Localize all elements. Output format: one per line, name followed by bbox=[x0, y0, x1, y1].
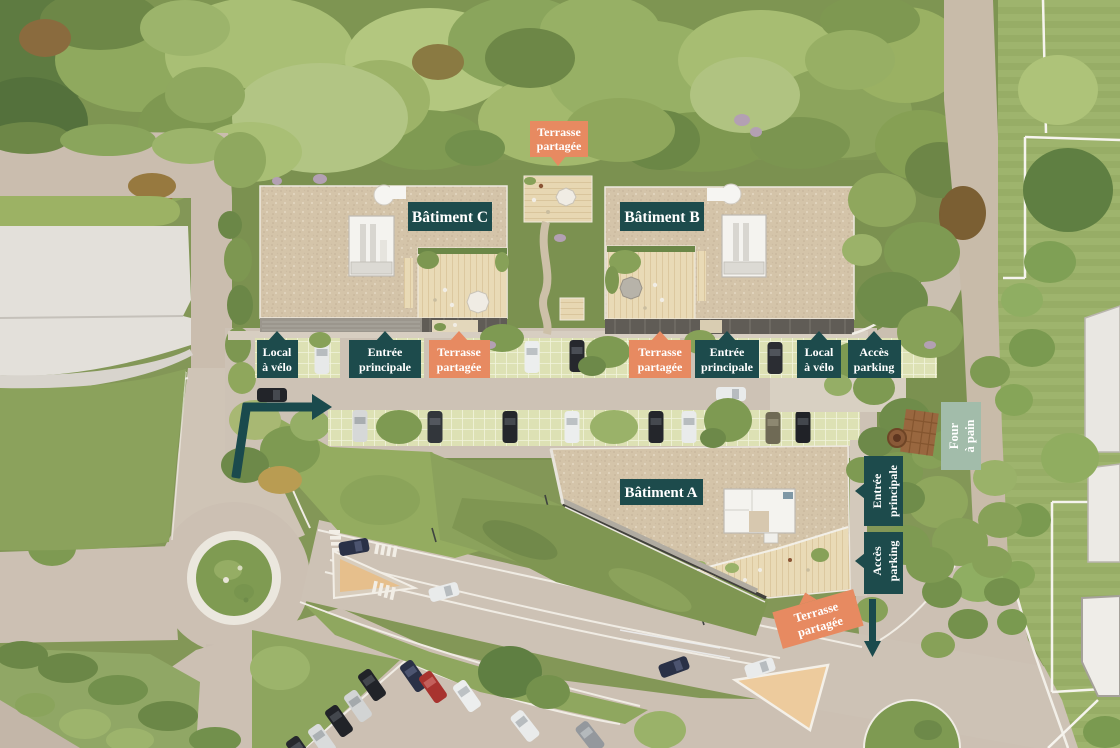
svg-text:Local: Local bbox=[805, 345, 834, 359]
svg-text:partagée: partagée bbox=[638, 360, 683, 374]
svg-text:Terrasse: Terrasse bbox=[437, 345, 481, 359]
svg-text:à vélo: à vélo bbox=[804, 360, 834, 374]
svg-text:Bâtiment C: Bâtiment C bbox=[412, 209, 488, 226]
svg-text:Bâtiment B: Bâtiment B bbox=[624, 209, 699, 226]
svg-text:Accès: Accès bbox=[870, 546, 884, 576]
svg-text:Bâtiment A: Bâtiment A bbox=[625, 485, 698, 501]
svg-text:Terrasse: Terrasse bbox=[537, 125, 581, 139]
svg-text:Entrée: Entrée bbox=[870, 473, 884, 508]
svg-text:à pain: à pain bbox=[963, 419, 977, 452]
svg-text:parking: parking bbox=[886, 541, 900, 582]
svg-text:partagée: partagée bbox=[537, 139, 582, 153]
svg-text:partagée: partagée bbox=[437, 360, 482, 374]
svg-text:Four: Four bbox=[947, 422, 961, 449]
svg-text:Terrasse: Terrasse bbox=[638, 345, 682, 359]
svg-text:Entrée: Entrée bbox=[710, 345, 745, 359]
svg-text:parking: parking bbox=[854, 360, 895, 374]
svg-text:Local: Local bbox=[263, 345, 292, 359]
svg-text:principale: principale bbox=[359, 360, 412, 374]
svg-text:principale: principale bbox=[701, 360, 754, 374]
svg-text:Entrée: Entrée bbox=[368, 345, 403, 359]
svg-text:à vélo: à vélo bbox=[262, 360, 292, 374]
svg-text:Accès: Accès bbox=[859, 345, 889, 359]
svg-text:principale: principale bbox=[886, 464, 900, 517]
